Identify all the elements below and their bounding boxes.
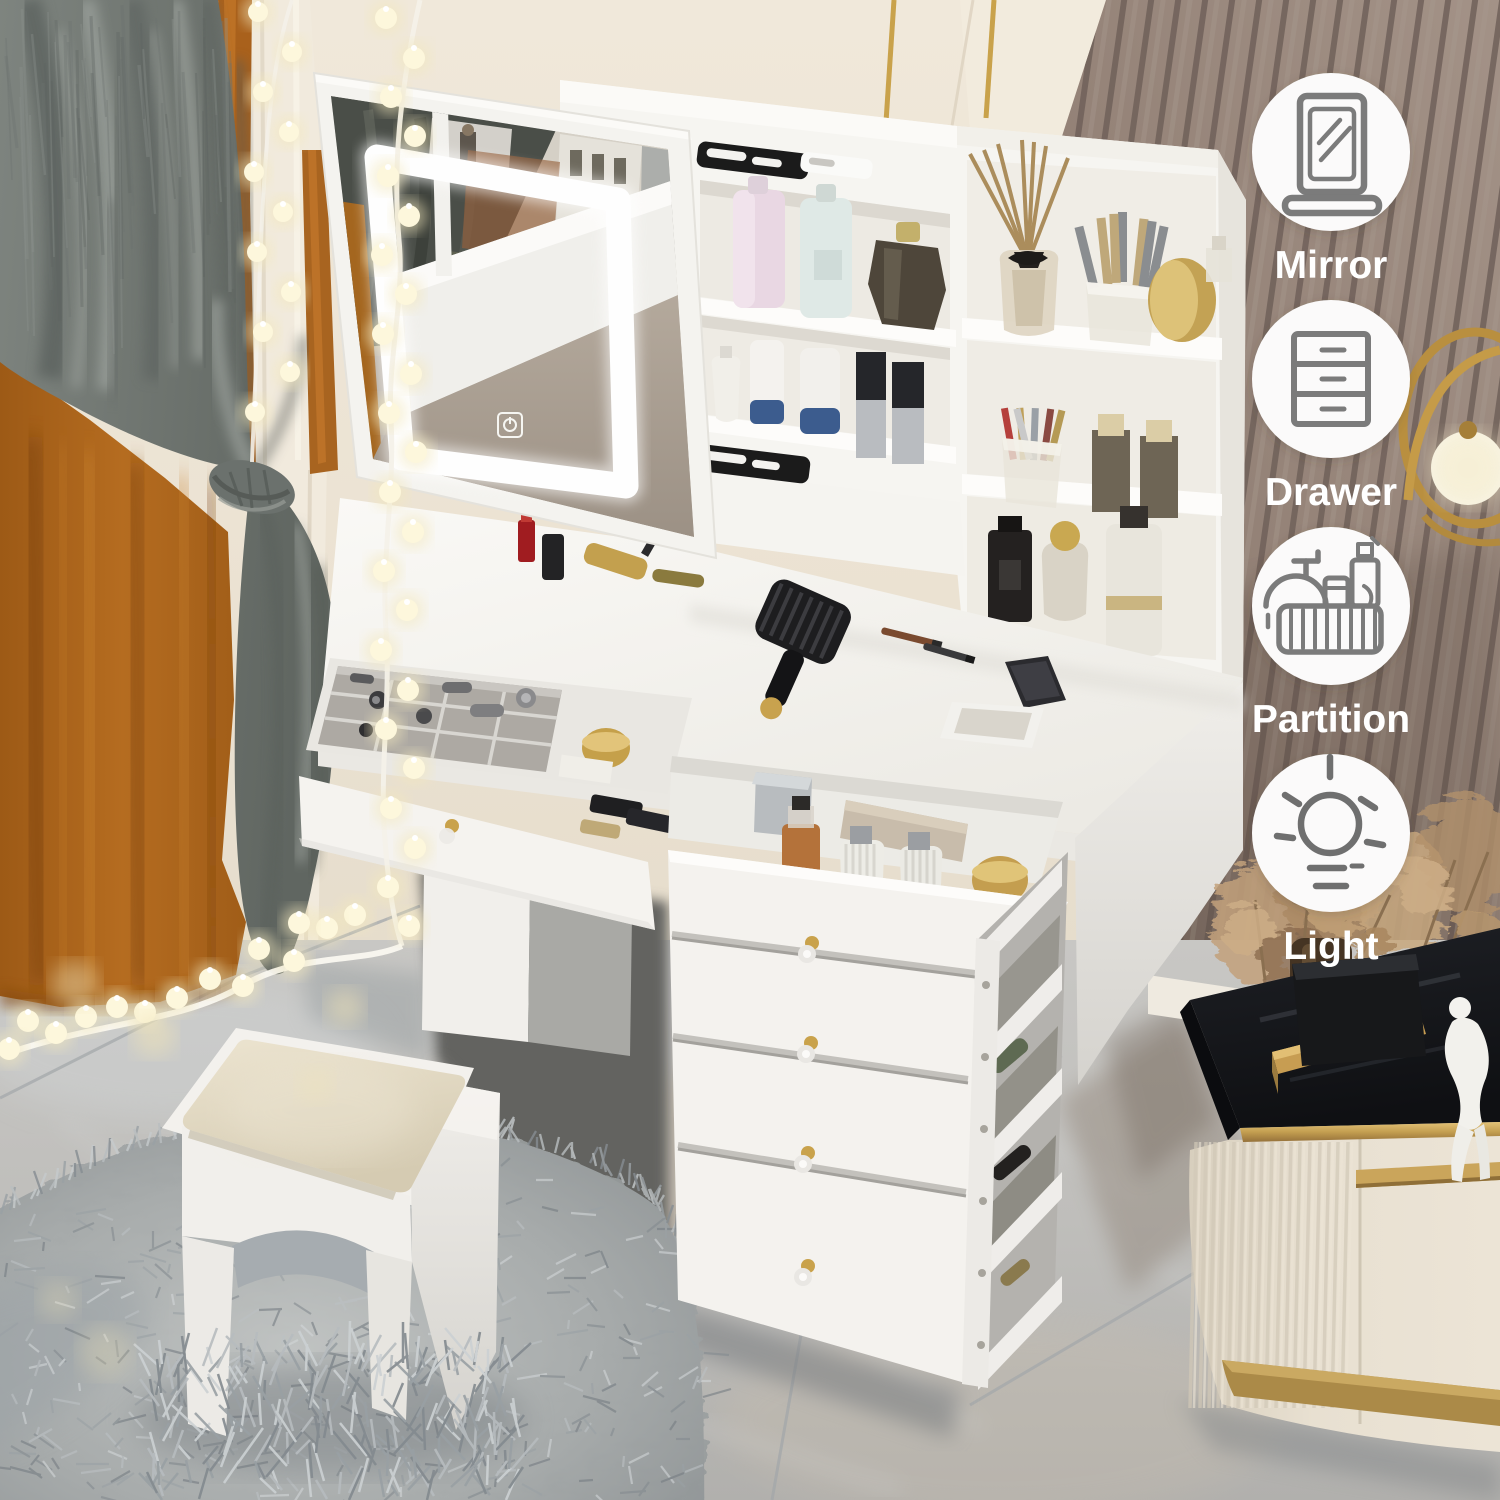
svg-text:Light: Light bbox=[1283, 925, 1378, 968]
svg-text:Mirror: Mirror bbox=[1275, 244, 1388, 287]
svg-text:Partition: Partition bbox=[1252, 698, 1410, 741]
svg-text:Drawer: Drawer bbox=[1265, 471, 1397, 514]
